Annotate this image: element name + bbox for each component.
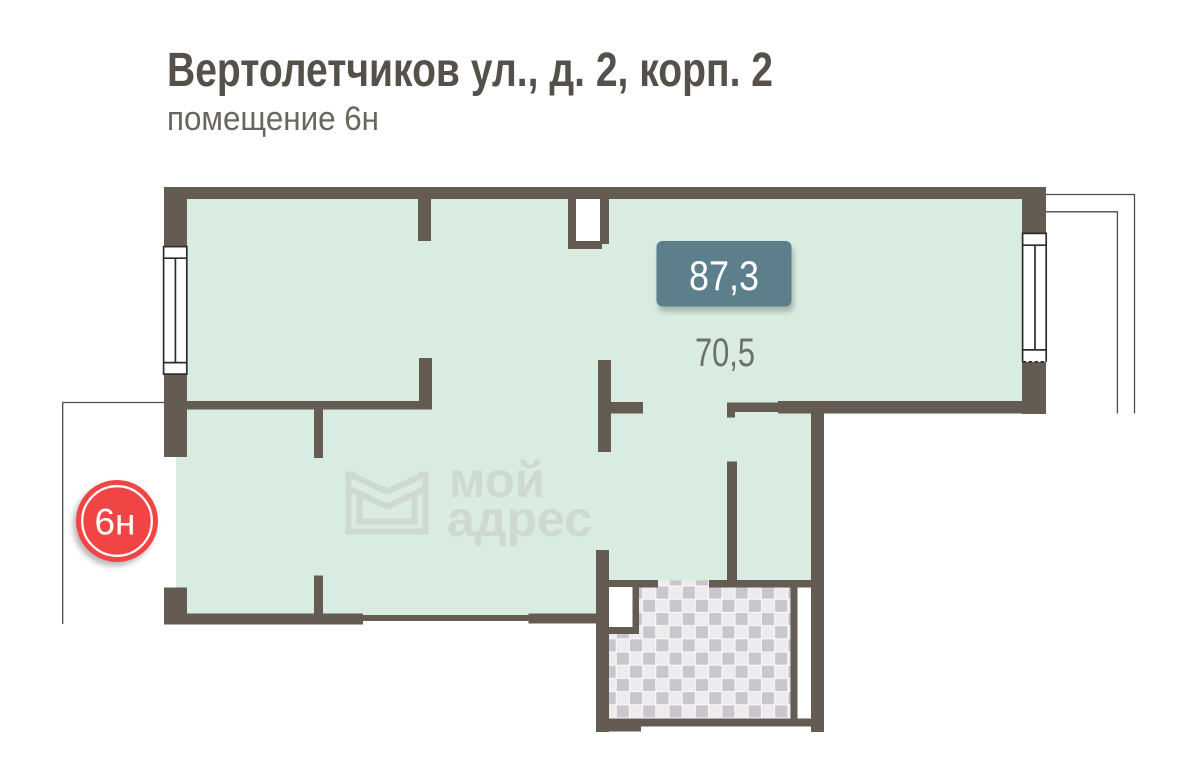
svg-text:Вертолетчиков ул., д. 2, корп.: Вертолетчиков ул., д. 2, корп. 2 — [167, 44, 773, 97]
svg-text:70,5: 70,5 — [695, 331, 755, 375]
svg-text:87,3: 87,3 — [689, 252, 759, 299]
svg-text:адрес: адрес — [447, 491, 592, 547]
svg-text:помещение 6н: помещение 6н — [167, 100, 379, 138]
svg-text:6н: 6н — [94, 502, 135, 543]
